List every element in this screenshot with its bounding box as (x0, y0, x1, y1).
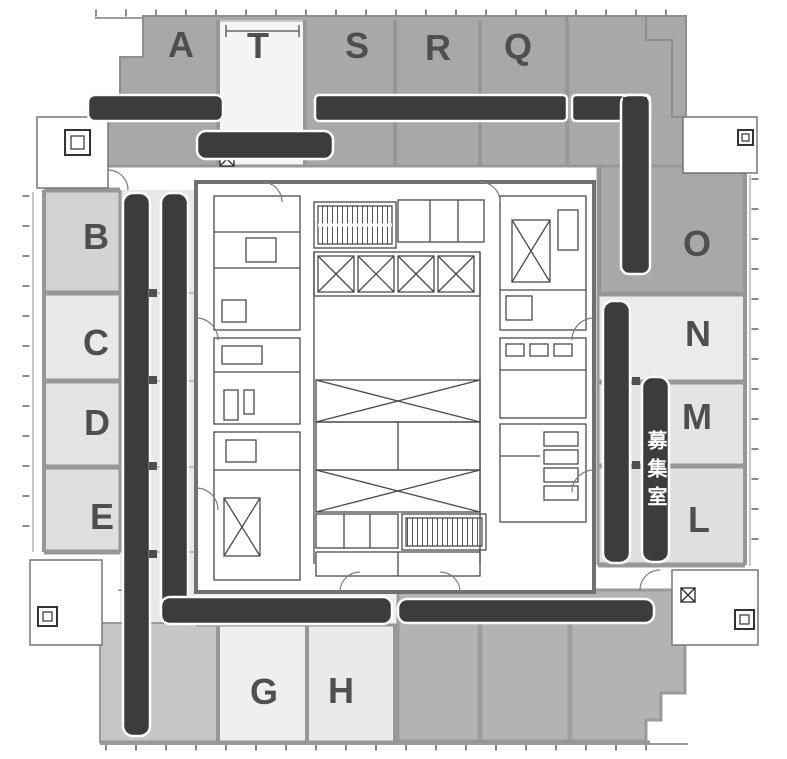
room-label-q: Q (504, 29, 532, 65)
bar-top-a (88, 95, 223, 121)
room-label-e: E (90, 499, 114, 535)
bar-top-corner-v (621, 95, 650, 274)
floor-plan-image: A T S R Q B C D E O N M L G H 募集室 (0, 0, 787, 759)
bottom-left-area (100, 623, 218, 742)
room-label-o: O (683, 226, 711, 262)
room-label-h: H (328, 673, 354, 709)
room-label-d: D (84, 405, 110, 441)
balcony-bottom-left (30, 560, 102, 645)
room-label-c: C (83, 325, 109, 361)
bar-left-inner (161, 193, 188, 624)
bar-right-outer (603, 301, 630, 563)
room-label-b: B (83, 219, 109, 255)
room-label-a: A (168, 27, 194, 63)
bar-left-outer (123, 193, 150, 736)
room-label-t: T (247, 28, 269, 64)
room-label-r: R (425, 30, 451, 66)
bar-top-srq (315, 95, 567, 121)
room-label-m: M (682, 399, 712, 435)
room-label-s: S (345, 28, 369, 64)
vacancy-room-label: 募集室 (645, 430, 665, 514)
bar-room-t (197, 131, 333, 159)
bar-bottom-right (398, 599, 654, 623)
floor-plan-canvas (0, 0, 787, 759)
room-label-l: L (688, 502, 710, 538)
balcony-bottom-right (672, 570, 758, 645)
bar-bottom-gh (161, 597, 392, 624)
room-label-g: G (250, 674, 278, 710)
room-label-n: N (685, 316, 711, 352)
